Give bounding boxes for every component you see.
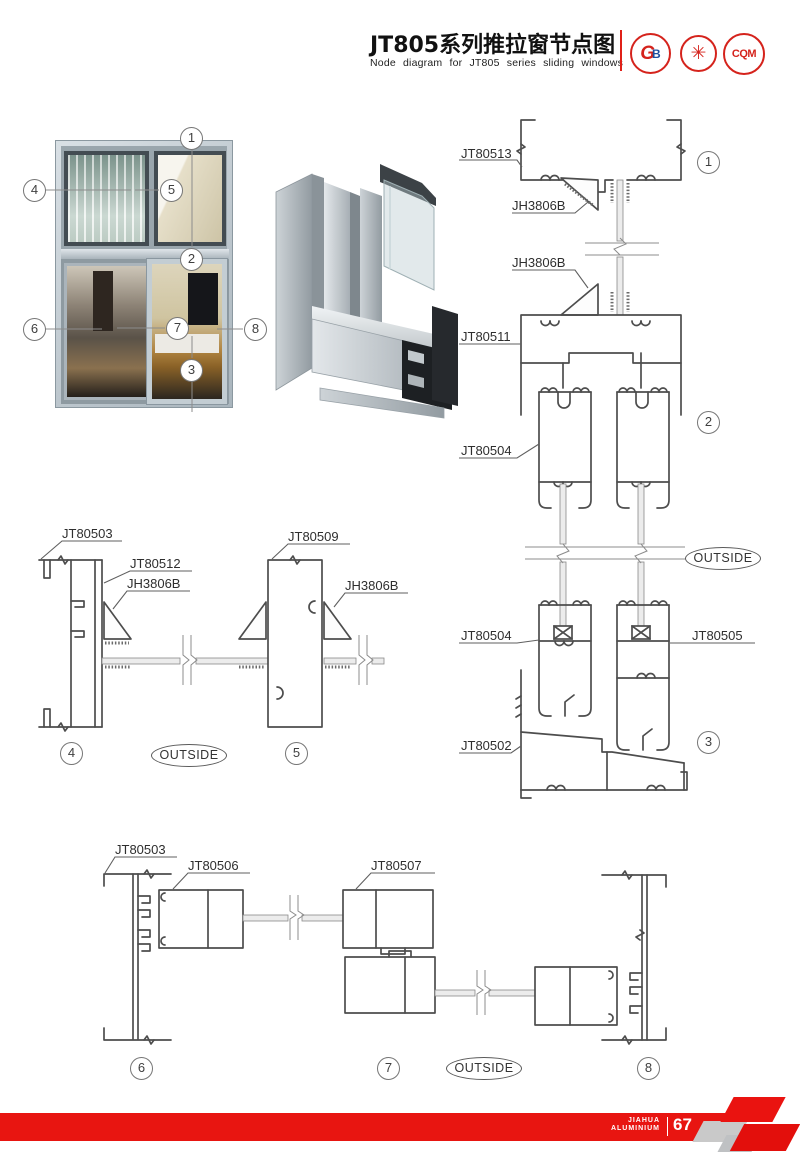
node-diagram-vertical-section (455, 110, 800, 810)
section-callout-8: 8 (637, 1057, 660, 1080)
profile-label-jh3806b-right: JH3806B (345, 578, 398, 593)
node-diagram-horizontal-section-lower (75, 840, 745, 1090)
outside-label-right: OUTSIDE (685, 547, 761, 570)
overview-callout-5: 5 (160, 179, 183, 202)
profile-label-jt80513: JT80513 (461, 146, 512, 161)
catalog-page: JT805系列推拉窗节点图 Node diagram for JT805 ser… (0, 0, 800, 1167)
page-number: 67 (673, 1115, 692, 1135)
cqm-text: CQM (732, 48, 756, 60)
gb-certification-badge-icon: G B (630, 33, 671, 74)
seal-glyph: ✳ (691, 42, 707, 65)
profile-label-jt80511: JT80511 (461, 329, 511, 344)
overview-callout-1: 1 (180, 127, 203, 150)
profile-label-jt80509: JT80509 (288, 529, 339, 544)
overview-callout-7: 7 (166, 317, 189, 340)
outside-label-mid: OUTSIDE (151, 744, 227, 767)
outside-label-bottom: OUTSIDE (446, 1057, 522, 1080)
page-title: JT805系列推拉窗节点图 (370, 27, 620, 59)
profile-label-jt80502: JT80502 (461, 738, 512, 753)
gb-letter-b: B (652, 47, 661, 61)
footer-divider (667, 1117, 668, 1136)
profile-label-jt80504-low: JT80504 (461, 628, 512, 643)
overview-callout-2: 2 (180, 248, 203, 271)
overview-callout-3: 3 (180, 359, 203, 382)
page-subtitle: Node diagram for JT805 series sliding wi… (370, 57, 618, 69)
profile-label-jt80507: JT80507 (371, 858, 422, 873)
cqm-certification-badge-icon: CQM (723, 33, 765, 75)
section-callout-5: 5 (285, 742, 308, 765)
node-diagram-horizontal-section-upper (25, 515, 445, 785)
section-callout-3: 3 (697, 731, 720, 754)
footer-brand-line1: JIAHUA (556, 1117, 660, 1125)
quality-seal-badge-icon: ✳ (680, 35, 717, 72)
profile-label-jh3806b-top: JH3806B (512, 198, 565, 213)
profile-label-jt80503-bottom: JT80503 (115, 842, 166, 857)
profile-label-jh3806b-left: JH3806B (127, 576, 180, 591)
footer-brand-line2: ALUMINIUM (556, 1125, 660, 1133)
profile-label-jt80503-mid: JT80503 (62, 526, 113, 541)
section-callout-7: 7 (377, 1057, 400, 1080)
overview-leader-lines (20, 120, 270, 420)
section-callout-4: 4 (60, 742, 83, 765)
profile-label-jt80512: JT80512 (130, 556, 181, 571)
section-callout-1: 1 (697, 151, 720, 174)
footer-logo-red-top (720, 1097, 785, 1122)
profile-label-jh3806b-bottom: JH3806B (512, 255, 565, 270)
section-callout-6: 6 (130, 1057, 153, 1080)
profile-label-jt80504-mid: JT80504 (461, 443, 512, 458)
footer-brand: JIAHUA ALUMINIUM (556, 1117, 660, 1133)
profile-label-jt80506: JT80506 (188, 858, 239, 873)
header-divider (620, 30, 622, 71)
profile-3d-render (262, 158, 460, 420)
overview-callout-6: 6 (23, 318, 46, 341)
overview-callout-4: 4 (23, 179, 46, 202)
profile-label-jt80505: JT80505 (692, 628, 743, 643)
section-callout-2: 2 (697, 411, 720, 434)
